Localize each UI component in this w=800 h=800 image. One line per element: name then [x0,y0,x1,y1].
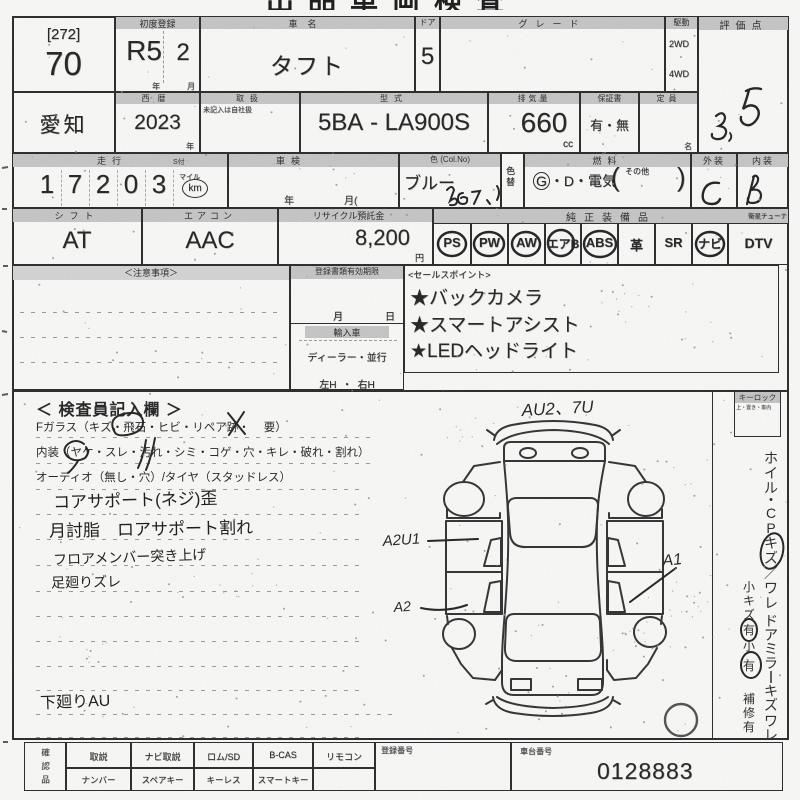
svg-text:A2: A2 [392,598,411,615]
svg-text:ズ: ズ [764,550,778,566]
svg-text:ズ: ズ [743,607,755,622]
svg-text:小: 小 [743,639,755,653]
svg-text:C: C [766,505,776,521]
svg-text:有: 有 [743,720,755,734]
svg-text:P: P [766,520,775,536]
svg-text:補: 補 [743,692,755,706]
svg-text:AU2、7U: AU2、7U [520,397,594,420]
svg-text:キ: キ [743,594,755,608]
svg-text:A1: A1 [661,551,683,570]
svg-text:レ: レ [764,595,778,611]
svg-text:ラ: ラ [764,655,778,671]
svg-text:／: ／ [764,565,778,581]
svg-text:キ: キ [764,535,778,551]
svg-text:イ: イ [764,465,778,481]
svg-text:ホ: ホ [764,450,778,466]
svg-text:A2U1: A2U1 [381,530,421,550]
svg-text:有: 有 [743,623,755,637]
svg-text:ワ: ワ [764,580,778,596]
svg-text:ズ: ズ [764,697,778,713]
svg-text:有: 有 [743,659,755,673]
svg-text:レ: レ [764,727,778,743]
svg-text:修: 修 [743,705,755,720]
svg-text:小: 小 [743,580,755,594]
